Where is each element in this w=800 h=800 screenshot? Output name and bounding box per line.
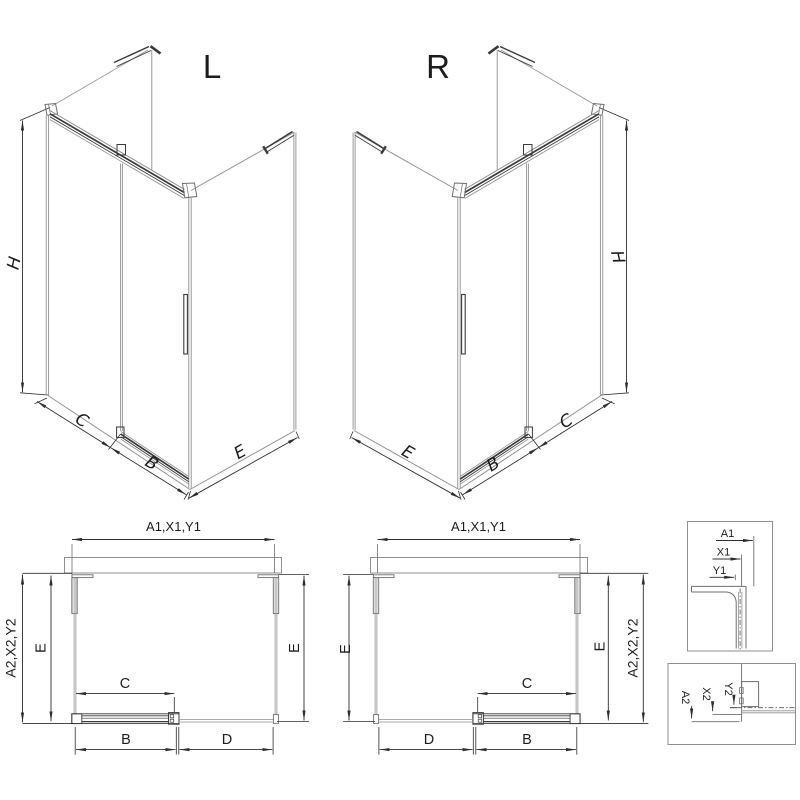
- detail-corner-top-view: [688, 522, 773, 652]
- plan-right-label-c: C: [522, 676, 532, 692]
- plan-left-label-b: B: [121, 732, 131, 748]
- door-rail-plan: [374, 713, 580, 725]
- dim-label-b-left: B: [141, 452, 161, 475]
- ceiling-support-bracket: [52, 46, 161, 170]
- dim-height: [20, 108, 50, 396]
- wall-profile-section: [692, 586, 747, 650]
- variant-title-right: R: [426, 48, 450, 85]
- plan-right-label-e-right: E: [593, 641, 609, 651]
- dim-c: [76, 694, 174, 712]
- plan-right-label-d: D: [424, 732, 434, 748]
- detail-top-label-x1: X1: [717, 547, 730, 559]
- dim-label-e-left: E: [231, 441, 250, 464]
- shower-enclosure-diagram: L H C B E R H C B E A1,X1,Y1 A2,X2,Y2 E …: [0, 0, 800, 800]
- detail-top-label-y1: Y1: [713, 565, 726, 577]
- dim-label-e-right: E: [398, 441, 417, 464]
- plan-left-label-e-left: E: [34, 643, 50, 653]
- detail-bottom-label-a2: A2: [679, 691, 691, 704]
- plan-right-label-a1: A1,X1,Y1: [451, 519, 506, 534]
- dim-a1: [72, 540, 275, 614]
- plan-left-label-d: D: [222, 732, 232, 748]
- wall-hatch: [371, 558, 588, 574]
- front-corner-profile: [183, 183, 197, 489]
- detail-top-label-a1: A1: [721, 528, 734, 540]
- variant-title-left: L: [203, 48, 221, 85]
- plan-right-label-e-left: E: [338, 644, 354, 654]
- dim-label-h-right: H: [606, 249, 628, 266]
- side-glass-panel: [190, 132, 296, 490]
- detail-dims: [710, 536, 754, 586]
- front-glass-wall: [46, 116, 190, 490]
- dim-c: [478, 694, 576, 712]
- wall-profile-left: [373, 575, 394, 715]
- plan-right-label-b: B: [522, 732, 532, 748]
- detail-bottom-label-y2: Y2: [722, 682, 734, 695]
- plan-left-label-e-right: E: [287, 643, 303, 653]
- wall-hatch: [65, 558, 282, 574]
- dim-b-d: [379, 727, 577, 755]
- detail-dims: [692, 698, 737, 719]
- plan-left-label-c: C: [120, 676, 130, 692]
- dim-label-b-right: B: [483, 453, 503, 476]
- detail-bottom-label-x2: X2: [700, 687, 712, 700]
- wall-profile-right: [258, 575, 279, 715]
- door-rail-plan: [72, 713, 279, 725]
- dim-e: [188, 432, 299, 500]
- top-slider-rail: [50, 111, 185, 199]
- technical-drawing-page: L H C B E R H C B E A1,X1,Y1 A2,X2,Y2 E …: [0, 0, 800, 800]
- plan-left-label-a1: A1,X1,Y1: [146, 519, 201, 534]
- dim-a1: [378, 540, 581, 614]
- iso-right-view: [350, 46, 629, 500]
- plan-left-view: [23, 540, 310, 755]
- door-handle: [184, 295, 188, 355]
- dim-b-d: [75, 727, 273, 755]
- plan-right-label-a2: A2,X2,Y2: [625, 618, 641, 677]
- iso-enclosure-geometry: [20, 46, 299, 500]
- plan-left-label-a2: A2,X2,Y2: [3, 618, 19, 677]
- dim-c-b: [35, 398, 189, 500]
- door-edge: [121, 164, 123, 432]
